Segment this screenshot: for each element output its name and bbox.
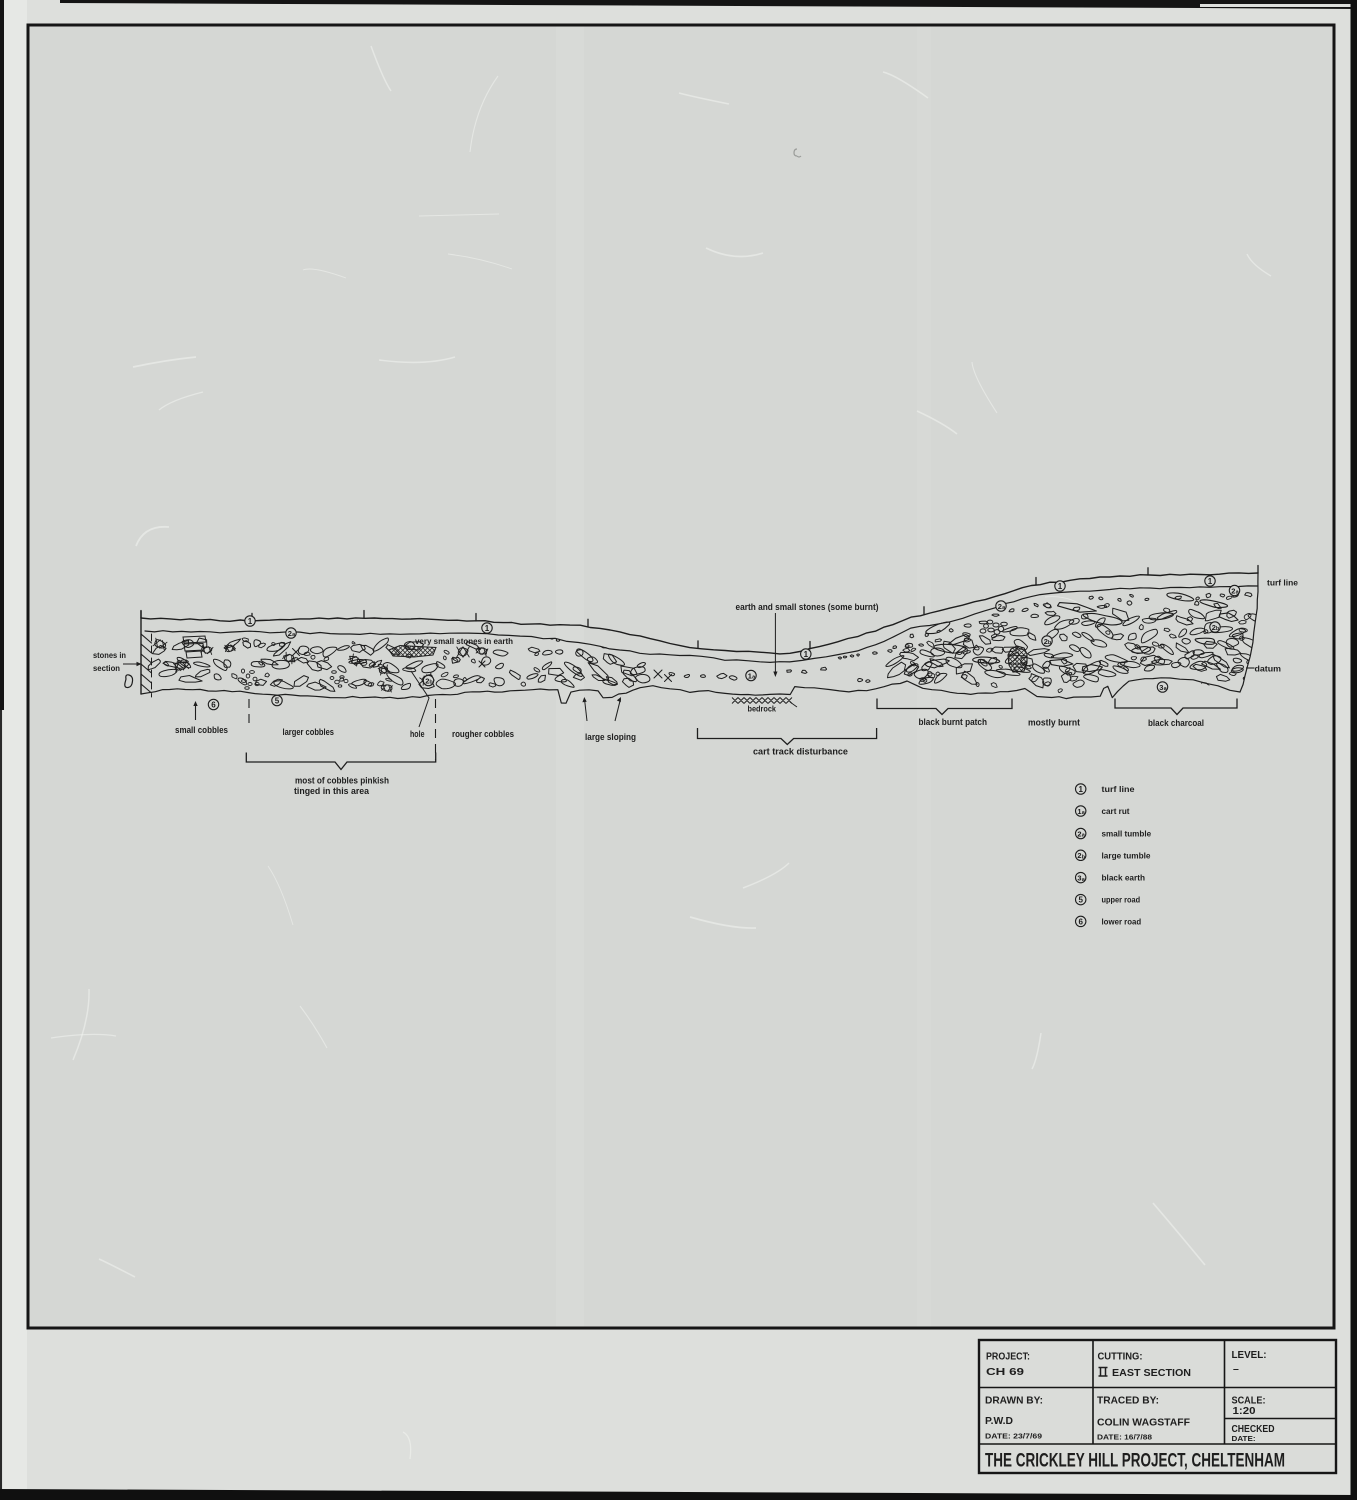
svg-text:P.W.D: P.W.D <box>985 1415 1013 1427</box>
svg-text:lower road: lower road <box>1102 916 1142 926</box>
svg-text:CUTTING:: CUTTING: <box>1098 1351 1143 1363</box>
svg-text:1: 1 <box>1208 577 1213 586</box>
svg-text:CH 69: CH 69 <box>986 1366 1024 1378</box>
svg-text:larger cobbles: larger cobbles <box>283 727 335 737</box>
svg-text:black charcoal: black charcoal <box>1148 718 1204 728</box>
svg-text:DATE: 23/7/69: DATE: 23/7/69 <box>985 1432 1042 1441</box>
svg-text:small cobbles: small cobbles <box>175 725 228 735</box>
svg-text:1: 1 <box>1058 582 1063 591</box>
svg-text:large tumble: large tumble <box>1102 850 1151 860</box>
svg-text:very small stones in earth: very small stones in earth <box>415 637 513 646</box>
svg-text:1: 1 <box>485 624 490 633</box>
svg-text:1:20: 1:20 <box>1233 1405 1256 1417</box>
svg-text:earth and small stones (some b: earth and small stones (some burnt) <box>736 602 879 612</box>
svg-text:section: section <box>93 664 120 673</box>
svg-text:large sloping: large sloping <box>585 732 636 742</box>
svg-text:1: 1 <box>248 617 253 626</box>
svg-text:bedrock: bedrock <box>748 705 777 714</box>
svg-text:1: 1 <box>804 650 809 659</box>
svg-text:cart rut: cart rut <box>1102 806 1130 816</box>
svg-text:1: 1 <box>1078 785 1083 794</box>
svg-text:rougher cobbles: rougher cobbles <box>452 729 514 739</box>
svg-text:stones in: stones in <box>93 651 126 660</box>
svg-text:small tumble: small tumble <box>1102 829 1152 839</box>
svg-text:DATE:: DATE: <box>1232 1434 1256 1443</box>
svg-text:mostly burnt: mostly burnt <box>1028 718 1080 728</box>
svg-text:5: 5 <box>1078 896 1083 905</box>
svg-text:6: 6 <box>211 700 216 709</box>
svg-text:tinged in this area: tinged in this area <box>294 786 370 796</box>
svg-text:DRAWN BY:: DRAWN BY: <box>985 1395 1043 1407</box>
svg-text:6: 6 <box>1078 917 1083 926</box>
svg-text:5: 5 <box>275 696 280 705</box>
svg-text:most of cobbles pinkish: most of cobbles pinkish <box>295 776 389 786</box>
svg-text:turf line: turf line <box>1102 784 1135 794</box>
svg-text:–: – <box>1233 1363 1239 1375</box>
svg-text:TRACED BY:: TRACED BY: <box>1097 1395 1159 1407</box>
svg-text:hole: hole <box>410 729 425 739</box>
svg-text:black earth: black earth <box>1102 873 1146 883</box>
svg-text:turf line: turf line <box>1267 579 1299 588</box>
svg-text:black burnt patch: black burnt patch <box>919 717 988 727</box>
svg-text:EAST SECTION: EAST SECTION <box>1112 1367 1191 1379</box>
svg-text:COLIN WAGSTAFF: COLIN WAGSTAFF <box>1097 1417 1191 1429</box>
svg-text:cart track disturbance: cart track disturbance <box>753 747 848 757</box>
svg-text:upper road: upper road <box>1102 895 1141 905</box>
svg-text:datum: datum <box>1255 665 1282 674</box>
svg-text:DATE: 16/7/88: DATE: 16/7/88 <box>1097 1433 1152 1442</box>
svg-text:THE CRICKLEY HILL PROJECT, CHE: THE CRICKLEY HILL PROJECT, CHELTENHAM <box>985 1451 1285 1472</box>
svg-text:LEVEL:: LEVEL: <box>1232 1349 1267 1361</box>
svg-text:PROJECT:: PROJECT: <box>986 1351 1030 1363</box>
